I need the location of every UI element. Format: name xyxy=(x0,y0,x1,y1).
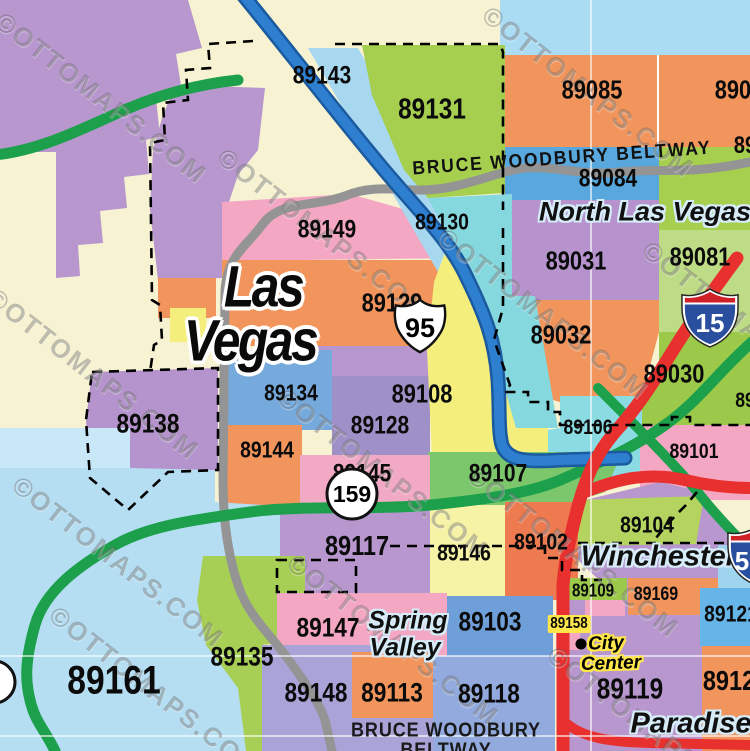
zip-label-89147: 89147 xyxy=(296,613,359,644)
city-label-north-las-vegas: North Las Vegas xyxy=(539,197,750,228)
i515-shield: 5 xyxy=(727,525,750,587)
zip-label-89: 89 xyxy=(735,389,750,413)
i15-shield: 15 xyxy=(681,287,739,349)
zip-label-89118: 89118 xyxy=(458,679,520,710)
zip-label-89108: 89108 xyxy=(392,379,453,410)
city-label-las-vegas-2: Vegas xyxy=(184,308,316,375)
zip-label-89030: 89030 xyxy=(644,359,705,390)
city-label-paradise: Paradise xyxy=(631,708,750,741)
zip-label-89032: 89032 xyxy=(531,320,592,351)
zip-label-89161: 89161 xyxy=(67,659,160,704)
edge-circle-shield: 9 xyxy=(0,658,18,706)
zip-label-89085: 89085 xyxy=(562,75,623,106)
zip-label-89117: 89117 xyxy=(325,530,389,562)
zip-label-89119: 89119 xyxy=(597,674,663,707)
us95-shield: 95 xyxy=(392,297,448,355)
zip-label-89131: 89131 xyxy=(398,94,466,127)
zip-label-89106: 89106 xyxy=(563,416,612,440)
zip-label-8908: 8908 xyxy=(715,75,750,106)
zip-label-8912: 8912 xyxy=(703,665,750,697)
zip-label-89104: 89104 xyxy=(620,512,674,539)
zip-label-89107: 89107 xyxy=(469,460,527,489)
zip-label-89135: 89135 xyxy=(210,642,273,673)
zip-label-89102: 89102 xyxy=(514,529,568,556)
zip-label-89146: 89146 xyxy=(437,540,491,567)
zip-label-89101: 89101 xyxy=(669,440,718,464)
zip-label-89143: 89143 xyxy=(293,62,351,91)
poi-label-city-center-2: Center xyxy=(581,652,642,676)
zip-label-89130: 89130 xyxy=(415,209,469,236)
zip-label-89158: 89158 xyxy=(548,615,590,633)
zip-label-89148: 89148 xyxy=(284,678,347,709)
road-label-beltway-bottom-2: BELTWAY xyxy=(400,740,491,751)
city-center-dot xyxy=(576,639,587,650)
zip-label-89169: 89169 xyxy=(634,584,678,606)
zip-label-89084: 89084 xyxy=(579,165,637,194)
zip-label-89121: 89121 xyxy=(704,601,750,628)
zip-label-89113: 89113 xyxy=(361,678,423,709)
las-vegas-zip-code-map: 8914389131890858908890848989031890818914… xyxy=(0,0,750,751)
zip-label-89144: 89144 xyxy=(240,437,294,464)
zip-label-89128: 89128 xyxy=(351,412,409,441)
zip-label-89031: 89031 xyxy=(546,246,607,277)
zip-label-89149: 89149 xyxy=(298,216,356,245)
zip-label-89081: 89081 xyxy=(670,242,731,273)
zip-label-89: 89 xyxy=(734,132,750,160)
zip-label-89109: 89109 xyxy=(572,581,614,602)
zip-label-89138: 89138 xyxy=(116,409,179,440)
city-label-spring-valley-2: Valley xyxy=(369,634,440,663)
city-label-spring-valley-1: Spring xyxy=(368,607,447,636)
zip-label-89103: 89103 xyxy=(458,607,521,638)
zip-label-89134: 89134 xyxy=(264,380,318,407)
sr159-shield: 159 xyxy=(324,466,380,522)
